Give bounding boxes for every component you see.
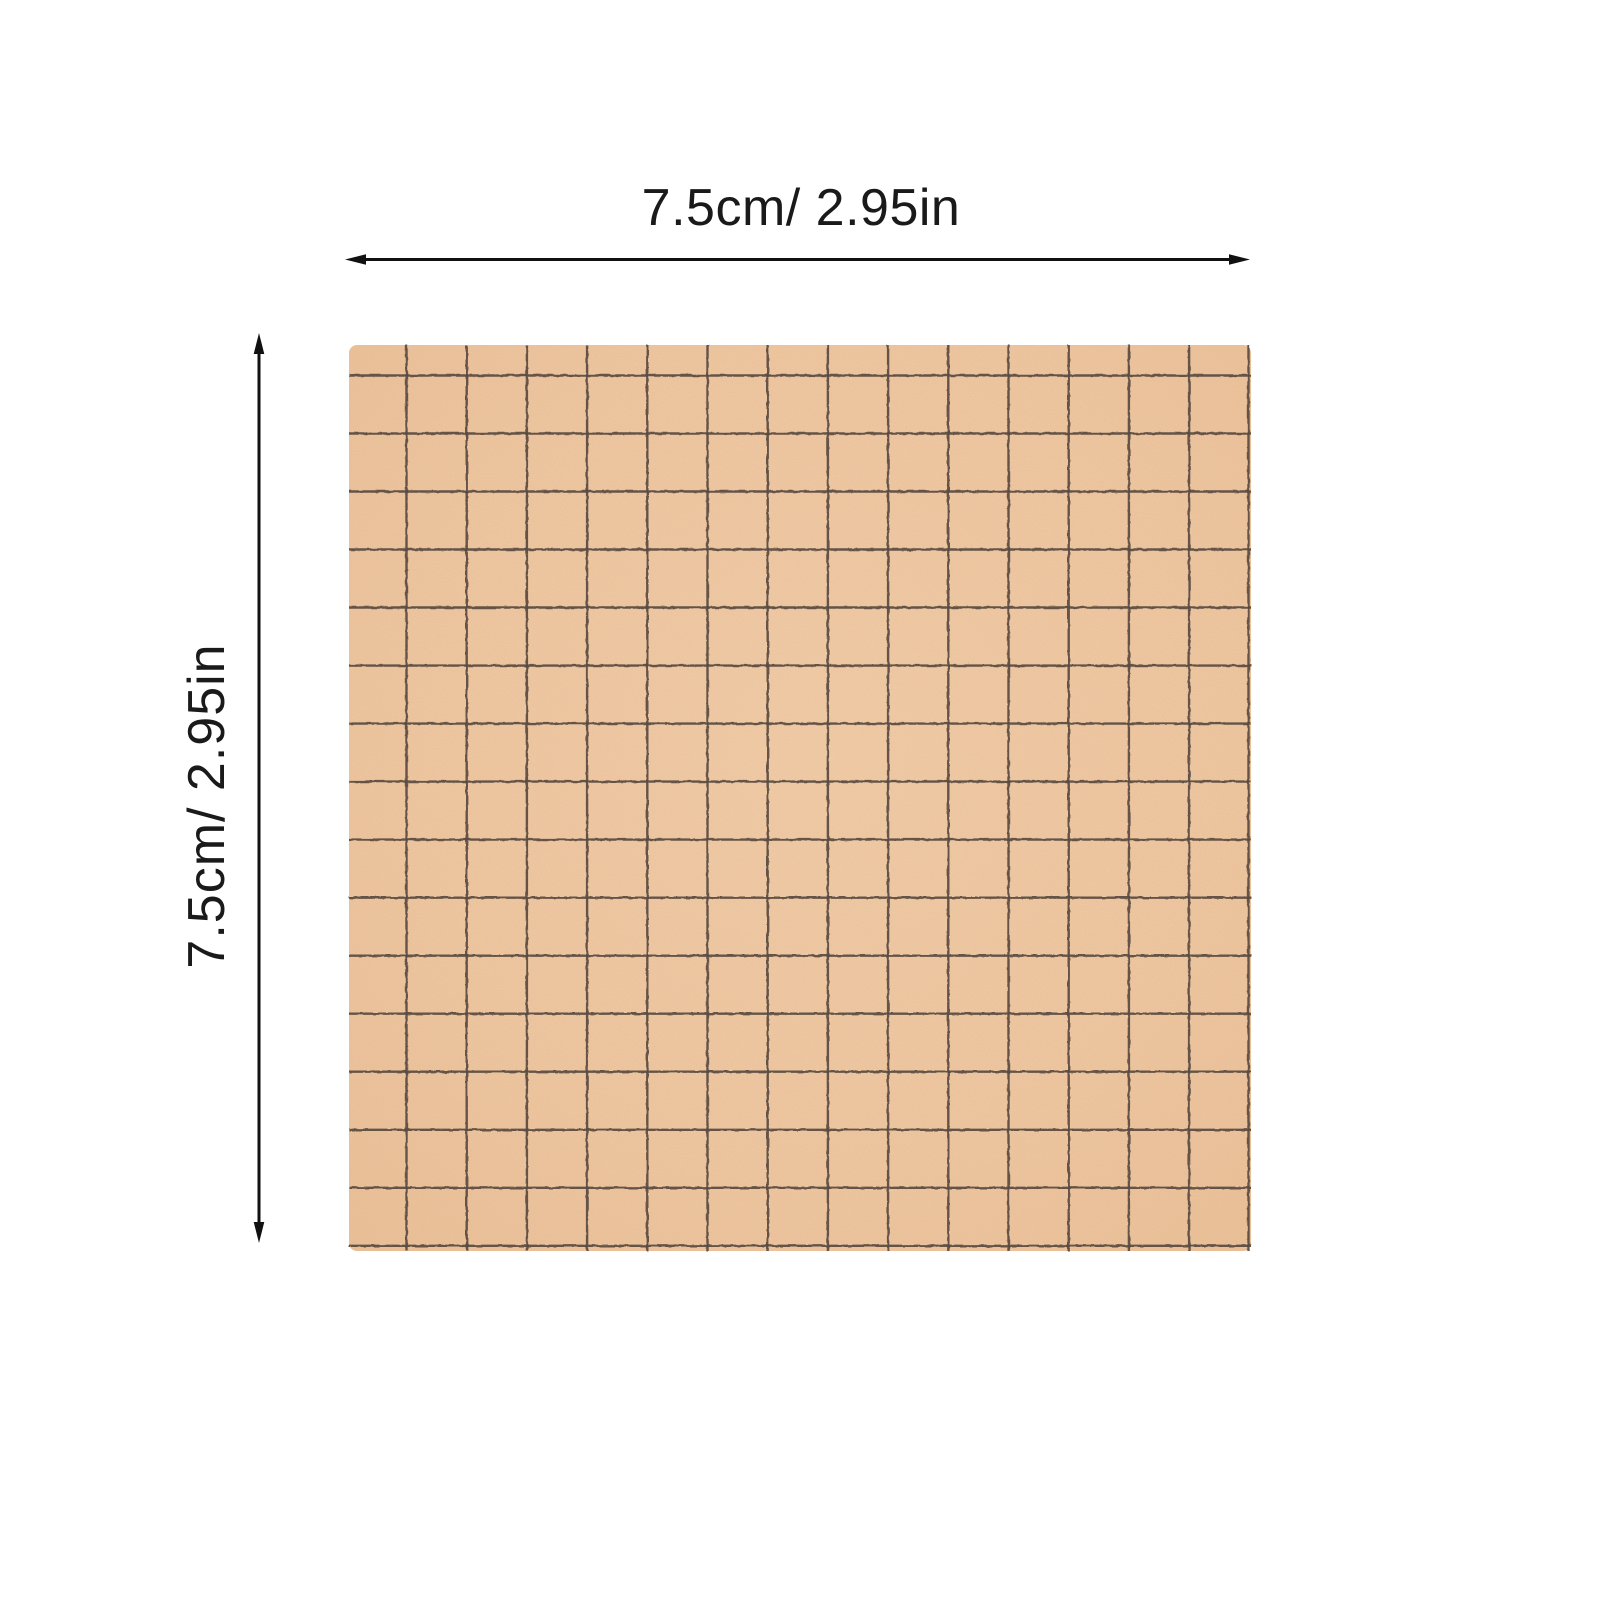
svg-text:7.5cm/ 2.95in: 7.5cm/ 2.95in [178,643,236,968]
svg-text:7.5cm/ 2.95in: 7.5cm/ 2.95in [642,179,961,237]
